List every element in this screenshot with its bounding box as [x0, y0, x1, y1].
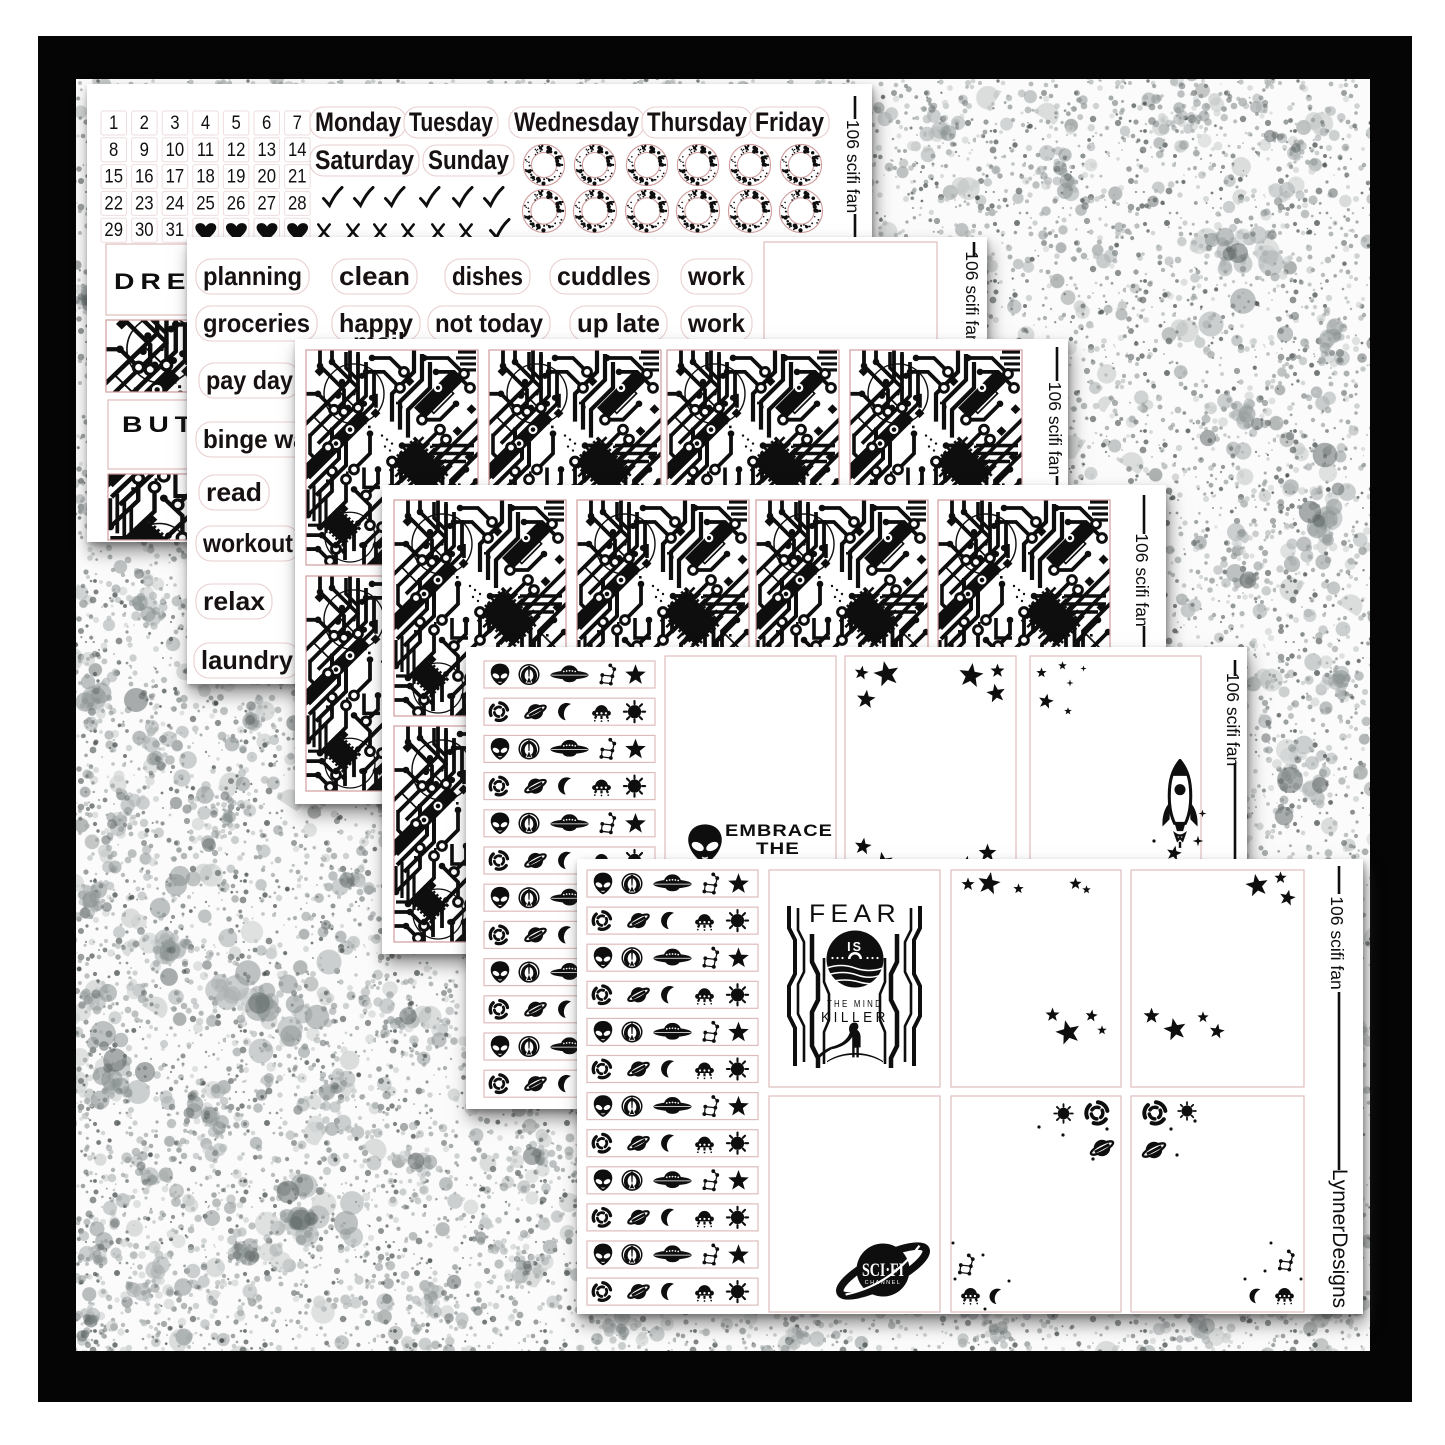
svg-text:Sunday: Sunday: [428, 145, 509, 175]
svg-text:16: 16: [135, 166, 154, 187]
svg-text:30: 30: [135, 219, 154, 240]
svg-text:7: 7: [293, 112, 302, 133]
svg-text:27: 27: [257, 192, 276, 213]
svg-text:Saturday: Saturday: [315, 145, 414, 175]
svg-text:31: 31: [166, 219, 185, 240]
svg-text:cuddles: cuddles: [557, 261, 651, 291]
svg-text:2: 2: [140, 112, 149, 133]
svg-text:clean: clean: [339, 261, 410, 291]
svg-text:106 scifi fan: 106 scifi fan: [1045, 382, 1065, 475]
svg-text:5: 5: [231, 112, 240, 133]
svg-text:Tuesday: Tuesday: [409, 107, 493, 137]
svg-text:13: 13: [257, 139, 276, 160]
svg-text:Friday: Friday: [755, 107, 824, 137]
svg-text:Thursday: Thursday: [647, 107, 747, 137]
svg-text:dishes: dishes: [452, 261, 523, 291]
svg-text:18: 18: [196, 166, 215, 187]
svg-text:8: 8: [109, 139, 118, 160]
svg-text:106 scifi fan: 106 scifi fan: [962, 251, 982, 344]
svg-text:19: 19: [227, 166, 246, 187]
svg-text:21: 21: [288, 166, 307, 187]
svg-text:read: read: [206, 477, 262, 507]
svg-text:LynnerDesigns: LynnerDesigns: [1328, 1169, 1351, 1308]
svg-text:25: 25: [196, 192, 215, 213]
svg-text:THE: THE: [756, 839, 800, 857]
svg-text:EMBRACE: EMBRACE: [725, 821, 833, 839]
svg-text:11: 11: [197, 139, 214, 160]
svg-text:14: 14: [288, 139, 307, 160]
svg-text:work: work: [687, 261, 745, 291]
svg-text:17: 17: [166, 166, 185, 187]
svg-text:10: 10: [166, 139, 185, 160]
svg-text:12: 12: [227, 139, 246, 160]
svg-text:22: 22: [104, 192, 123, 213]
svg-text:24: 24: [166, 192, 185, 213]
svg-text:laundry: laundry: [201, 645, 294, 675]
svg-text:106 scifi fan: 106 scifi fan: [1223, 673, 1243, 766]
svg-text:6: 6: [262, 112, 271, 133]
svg-text:20: 20: [257, 166, 276, 187]
svg-text:pay day: pay day: [206, 365, 293, 395]
svg-text:29: 29: [104, 219, 123, 240]
svg-text:106 scifi fan: 106 scifi fan: [843, 120, 863, 213]
svg-text:3: 3: [170, 112, 179, 133]
svg-text:work: work: [687, 308, 745, 338]
svg-text:9: 9: [140, 139, 149, 160]
svg-text:23: 23: [135, 192, 154, 213]
svg-text:Monday: Monday: [315, 107, 401, 137]
svg-text:1: 1: [109, 112, 118, 133]
svg-text:groceries: groceries: [203, 308, 310, 338]
svg-text:relax: relax: [203, 586, 266, 616]
svg-text:planning: planning: [203, 261, 302, 291]
svg-text:workout: workout: [202, 528, 293, 558]
svg-text:up late: up late: [577, 308, 660, 338]
svg-text:106 scifi fan: 106 scifi fan: [1132, 533, 1152, 626]
svg-text:26: 26: [227, 192, 246, 213]
svg-text:Wednesday: Wednesday: [514, 107, 639, 137]
svg-text:15: 15: [104, 166, 123, 187]
svg-text:4: 4: [201, 112, 210, 133]
svg-text:106 scifi fan: 106 scifi fan: [1327, 896, 1347, 989]
svg-text:28: 28: [288, 192, 307, 213]
svg-text:not today: not today: [435, 308, 543, 338]
